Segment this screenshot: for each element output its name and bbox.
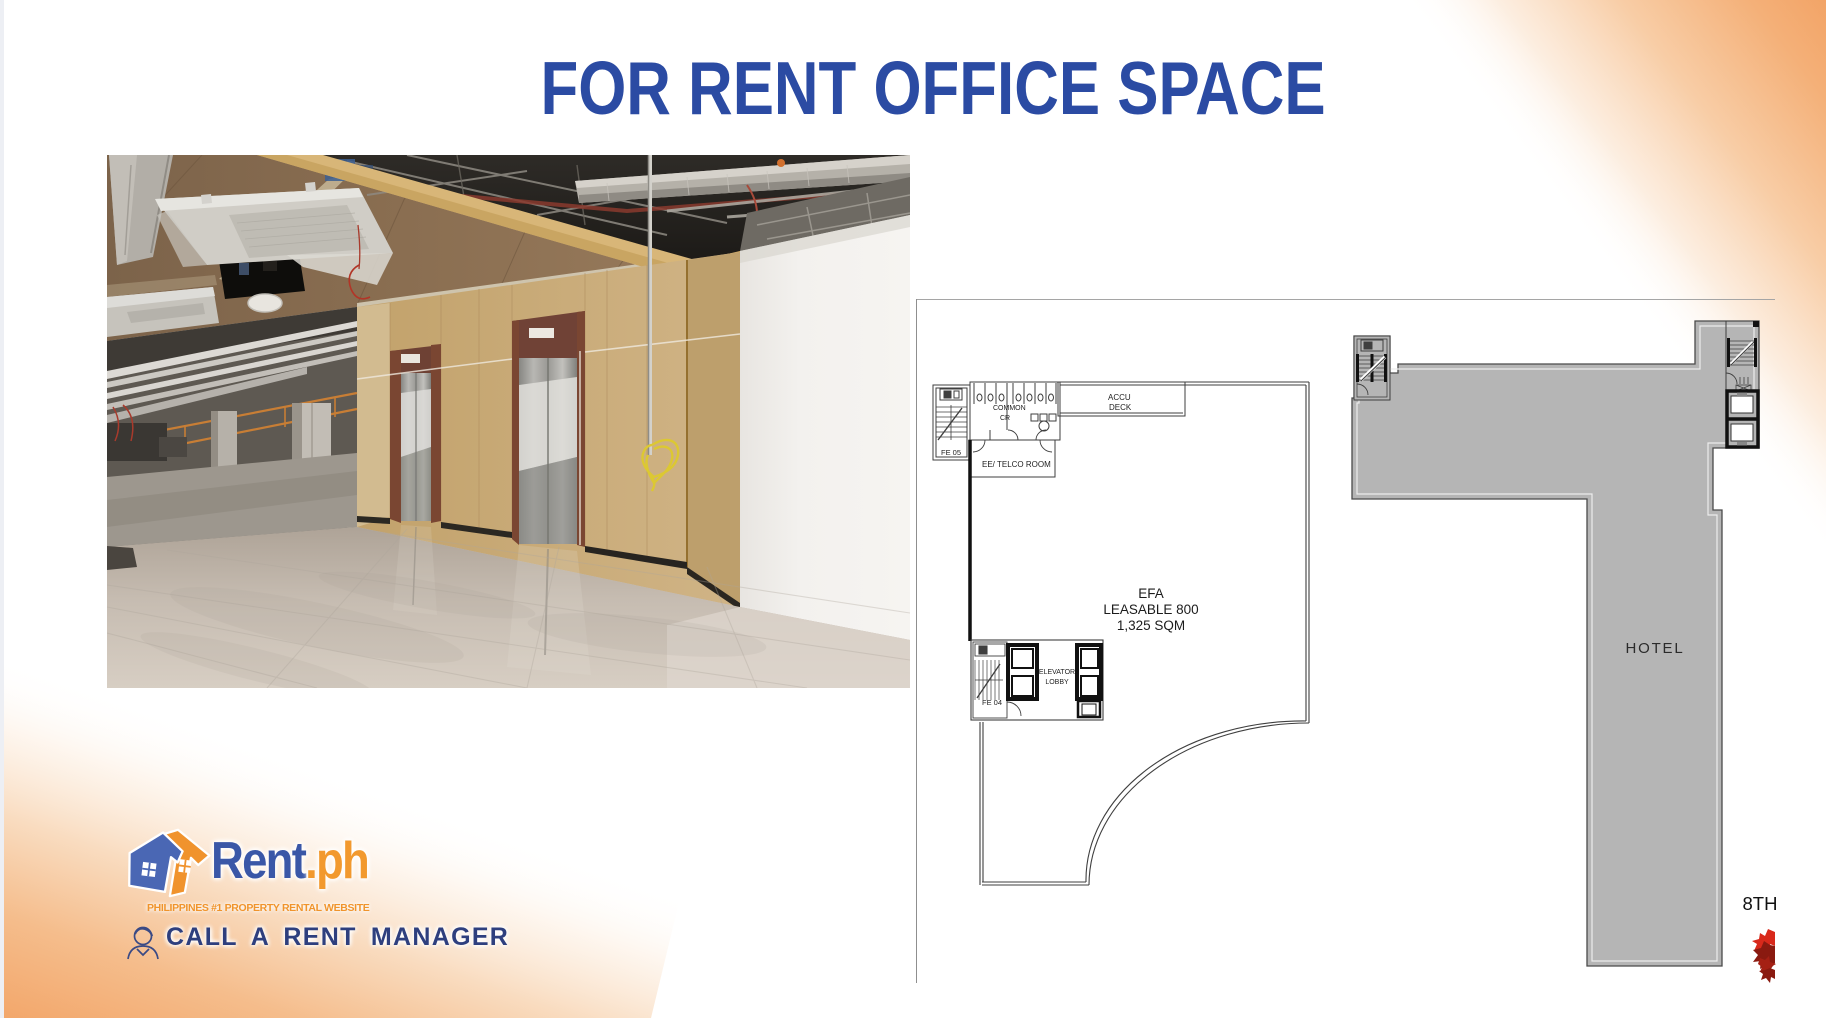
svg-text:LEASABLE 800: LEASABLE 800 bbox=[1103, 602, 1198, 617]
svg-text:FE 05: FE 05 bbox=[941, 448, 961, 457]
svg-text:FE 04: FE 04 bbox=[982, 698, 1002, 707]
svg-text:CR: CR bbox=[1000, 415, 1010, 422]
svg-text:EE/ TELCO ROOM: EE/ TELCO ROOM bbox=[982, 460, 1051, 469]
svg-text:HOTEL: HOTEL bbox=[1625, 640, 1684, 657]
svg-text:COMMON: COMMON bbox=[993, 405, 1026, 412]
svg-text:8TH: 8TH bbox=[1743, 893, 1778, 914]
svg-text:1,325 SQM: 1,325 SQM bbox=[1117, 618, 1185, 633]
svg-text:EFA: EFA bbox=[1138, 586, 1164, 601]
svg-text:DECK: DECK bbox=[1109, 403, 1132, 412]
svg-text:ELEVATOR: ELEVATOR bbox=[1039, 669, 1075, 676]
svg-text:ACCU: ACCU bbox=[1108, 393, 1131, 402]
svg-text:LOBBY: LOBBY bbox=[1045, 679, 1069, 686]
